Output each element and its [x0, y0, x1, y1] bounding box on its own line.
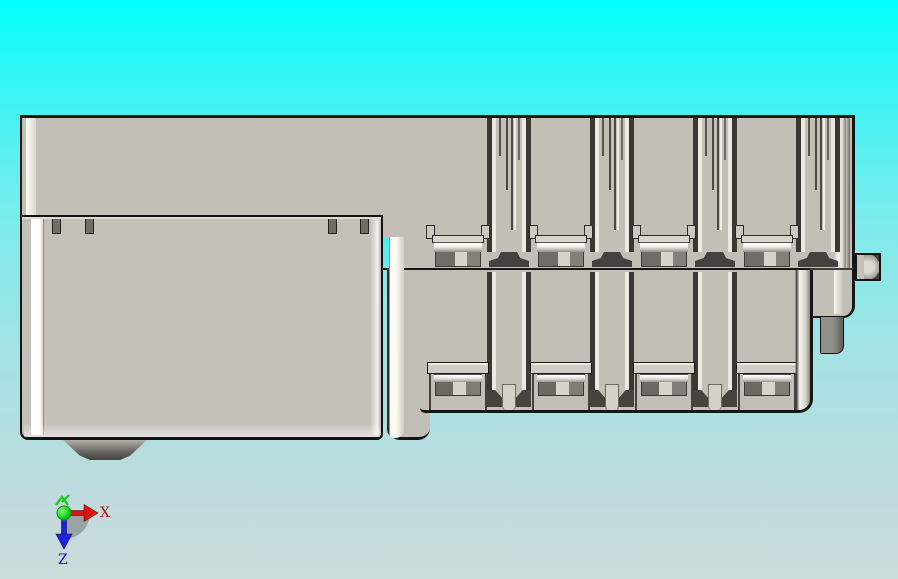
clamp-blocks: [538, 382, 584, 396]
metal-clamp-band: [640, 242, 688, 252]
terminal-pocket-upper: [427, 225, 489, 268]
y-axis-marker: [56, 495, 69, 505]
terminal-pocket-upper: [530, 225, 592, 268]
slot-line: [511, 118, 513, 230]
slot-foot: [590, 390, 605, 407]
slot-line: [827, 118, 829, 160]
slot-stem: [502, 384, 516, 410]
clamp-blocks: [744, 252, 790, 267]
clamp-blocks: [641, 382, 687, 396]
metal-clamp-band: [434, 242, 482, 252]
slot-line: [518, 118, 520, 160]
mounting-tab: [360, 219, 369, 234]
mounting-tab: [85, 219, 94, 234]
terminal-pocket-upper: [633, 225, 695, 268]
slot-foot: [798, 252, 838, 267]
bottom-shading: [24, 423, 380, 437]
model-left-cover: [20, 215, 383, 440]
clamp-blocks: [641, 252, 687, 267]
pocket-cap: [736, 362, 798, 374]
background-gap: [383, 237, 389, 268]
right-edge-highlight: [370, 219, 381, 435]
right-step-block: [820, 316, 844, 354]
slot-line: [823, 118, 825, 230]
clamp-blocks: [538, 252, 584, 267]
slot-line: [717, 118, 719, 230]
slot-line: [712, 118, 714, 190]
mounting-tab: [328, 219, 337, 234]
slot-line: [724, 118, 726, 160]
right-column-highlight: [834, 270, 844, 314]
metal-clamp-band: [640, 374, 688, 382]
left-edge-highlight: [31, 219, 44, 435]
slot-line: [506, 118, 508, 190]
terminal-pocket-upper: [736, 225, 798, 268]
x-axis-arrowhead: [84, 505, 98, 522]
divider-wall-highlight: [387, 237, 404, 438]
z-axis-arrowhead: [56, 534, 72, 549]
slot-line: [514, 118, 516, 230]
metal-clamp-band: [537, 374, 585, 382]
slot-line: [621, 118, 623, 160]
slot-bars: [487, 272, 531, 390]
slot-foot: [695, 252, 735, 267]
pocket-cap: [427, 362, 489, 374]
slot-line: [602, 118, 604, 156]
slot-line: [820, 118, 822, 230]
slot-channel-upper: [796, 118, 840, 268]
slot-bars: [796, 118, 840, 252]
cad-viewport[interactable]: X Z: [0, 0, 898, 579]
terminal-pocket-lower: [429, 362, 487, 410]
slot-stem: [605, 384, 619, 410]
slot-foot: [722, 390, 737, 407]
x-axis-label: X: [100, 505, 110, 521]
slot-line: [815, 118, 817, 190]
slot-line: [808, 118, 810, 156]
z-axis-label: Z: [58, 552, 68, 568]
slot-line: [609, 118, 611, 190]
slot-bars: [487, 118, 531, 252]
terminal-pocket-lower: [738, 362, 796, 410]
bottom-foot: [63, 440, 147, 460]
slot-line: [720, 118, 722, 230]
slot-foot: [592, 252, 632, 267]
slot-bars: [590, 118, 634, 252]
pocket-cap: [633, 362, 695, 374]
slot-channel-upper: [487, 118, 531, 268]
metal-clamp-band: [434, 374, 482, 382]
metal-clamp-band: [537, 242, 585, 252]
pocket-cap: [530, 362, 592, 374]
slot-channel-lower: [590, 272, 634, 410]
slot-foot: [619, 390, 634, 407]
mounting-tab: [52, 219, 61, 234]
y-axis-origin-ball: [57, 506, 71, 520]
model-lower-body: [420, 270, 813, 413]
slot-line: [617, 118, 619, 230]
coordinate-triad: X Z: [38, 486, 124, 576]
slot-line: [614, 118, 616, 230]
right-column-step: [810, 268, 855, 318]
slot-line: [705, 118, 707, 156]
slot-bars: [693, 118, 737, 252]
slot-channel-lower: [487, 272, 531, 410]
slot-foot: [516, 390, 531, 407]
terminal-pocket-lower: [532, 362, 590, 410]
slot-foot: [693, 390, 708, 407]
slot-channel-lower: [693, 272, 737, 410]
slot-stem: [708, 384, 722, 410]
metal-clamp-band: [743, 242, 791, 252]
terminal-pocket-lower: [635, 362, 693, 410]
slot-foot: [487, 390, 502, 407]
right-edge-highlight: [795, 270, 810, 410]
slot-stem: [811, 384, 813, 410]
slot-channel-upper: [693, 118, 737, 268]
clamp-blocks: [744, 382, 790, 396]
slot-bars: [590, 272, 634, 390]
slot-channel-upper: [590, 118, 634, 268]
side-peg: [855, 253, 881, 281]
clamp-blocks: [435, 252, 481, 267]
slot-line: [499, 118, 501, 156]
clamp-blocks: [435, 382, 481, 396]
metal-clamp-band: [743, 374, 791, 382]
slot-foot: [489, 252, 529, 267]
slot-bars: [693, 272, 737, 390]
